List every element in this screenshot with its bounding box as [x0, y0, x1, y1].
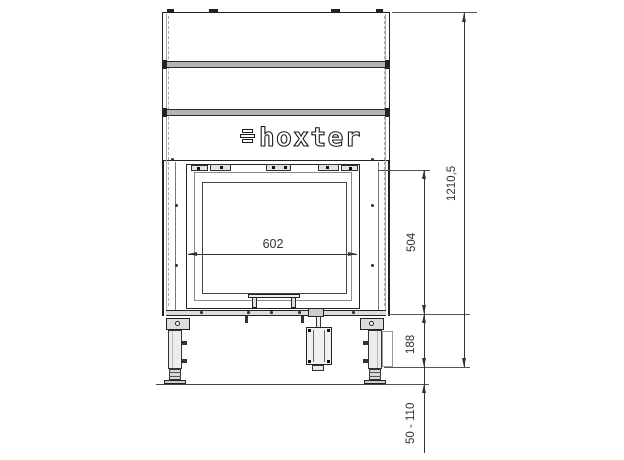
band-end-cap — [385, 60, 390, 69]
hoxter-logo-mark — [240, 134, 255, 138]
base-screw — [200, 311, 203, 314]
leg-tab — [363, 359, 368, 363]
dim-label-total-height: 1210,5 — [444, 159, 460, 207]
screw-dot — [175, 204, 178, 207]
bracket-hole — [175, 321, 180, 326]
hinge-bolt — [326, 166, 329, 169]
dim-label-glass-width: 602 — [255, 238, 291, 251]
leg-tab — [182, 341, 187, 345]
right-leg — [368, 330, 382, 369]
base-screw — [352, 311, 355, 314]
dim-arrow — [422, 170, 426, 179]
dim-line — [188, 254, 357, 255]
leg-tab — [363, 341, 368, 345]
top-tab — [376, 9, 383, 12]
door-handle-post — [252, 297, 257, 308]
screw-dot — [371, 264, 374, 267]
top-tab — [331, 9, 340, 12]
foot-thread-line — [369, 372, 381, 373]
plate-bolt — [308, 329, 311, 332]
decor-band-2 — [163, 109, 389, 116]
hinge-bolt — [220, 166, 223, 169]
dim-arrow — [422, 305, 426, 314]
bracket-hole — [369, 321, 374, 326]
decor-band-1 — [163, 61, 389, 68]
screw-dot — [371, 158, 374, 161]
base-screw — [298, 311, 301, 314]
dim-arrow — [462, 358, 466, 367]
plate-bolt — [308, 360, 311, 363]
dim-arrow — [422, 358, 426, 367]
upper-box-inner-line-right — [385, 14, 386, 310]
hinge-block — [318, 164, 339, 171]
side-return-right — [378, 162, 379, 310]
base-screw — [270, 311, 273, 314]
top-tab — [209, 9, 218, 12]
dim-line-total-height — [464, 13, 465, 367]
dim-arrow — [422, 384, 426, 393]
base-tab — [245, 316, 248, 323]
band-end-cap — [385, 108, 390, 117]
body-side-right — [388, 160, 390, 316]
right-adjustable-foot — [369, 369, 381, 380]
fireplace-technical-drawing: hoxter — [0, 0, 624, 460]
left-leg-line — [172, 331, 173, 368]
body-side-left — [162, 160, 164, 316]
foot-thread-line — [169, 376, 181, 377]
right-leg-line — [377, 331, 378, 368]
hoxter-logo-text: hoxter — [259, 125, 362, 151]
dim-label-base-height: 188 — [403, 322, 419, 366]
foot-thread-line — [169, 372, 181, 373]
plate-channel-line — [313, 330, 314, 362]
weld-dash-line-left — [168, 16, 169, 306]
base-screw — [247, 311, 250, 314]
hoxter-logo-mark — [242, 139, 253, 143]
screw-dot — [371, 204, 374, 207]
dim-arrow — [188, 252, 197, 256]
band-end-cap — [162, 108, 167, 117]
door-handle-post — [291, 297, 296, 308]
foot-thread-line — [369, 376, 381, 377]
plate-channel-line — [324, 330, 325, 362]
extension-line-leg-bottom — [384, 367, 470, 368]
hinge-bolt — [197, 167, 200, 170]
plate-bolt — [327, 360, 330, 363]
base-tab — [301, 316, 304, 323]
dim-arrow — [462, 13, 466, 22]
leg-tab — [182, 359, 187, 363]
top-tab — [167, 9, 174, 12]
band-end-cap — [162, 60, 167, 69]
left-adjustable-foot — [169, 369, 181, 380]
screw-dot — [171, 158, 174, 161]
side-return-left — [175, 162, 176, 310]
dim-label-feet-range: 50 - 110 — [403, 397, 419, 449]
hoxter-logo-mark — [242, 129, 253, 133]
right-side-panel — [382, 331, 393, 367]
left-leg — [168, 330, 182, 369]
dim-arrow — [422, 314, 426, 323]
air-inlet-tab — [312, 365, 324, 371]
extension-line-body-bottom — [388, 314, 470, 315]
latch-block — [266, 164, 291, 171]
upper-box-inner-line-left — [166, 14, 167, 310]
screw-dot — [175, 264, 178, 267]
hinge-block — [191, 165, 208, 171]
plate-bolt — [327, 329, 330, 332]
dim-label-door-height: 504 — [404, 219, 420, 265]
dim-arrow — [348, 252, 357, 256]
latch-bolt — [284, 166, 287, 169]
latch-bolt — [272, 166, 275, 169]
hinge-bolt — [349, 167, 352, 170]
